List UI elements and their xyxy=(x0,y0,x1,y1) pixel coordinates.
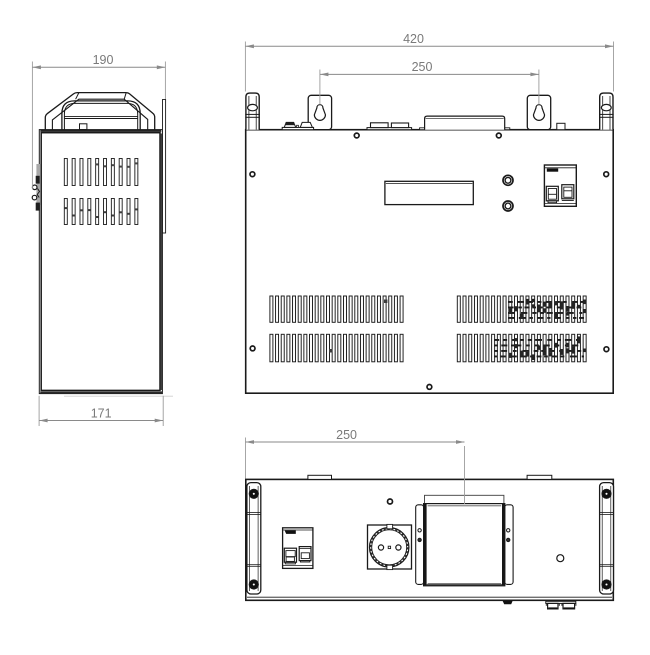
svg-text:250: 250 xyxy=(412,60,433,74)
svg-text:171: 171 xyxy=(91,406,112,420)
svg-text:420: 420 xyxy=(403,32,424,46)
svg-text:190: 190 xyxy=(93,53,114,67)
svg-text:250: 250 xyxy=(336,428,357,442)
